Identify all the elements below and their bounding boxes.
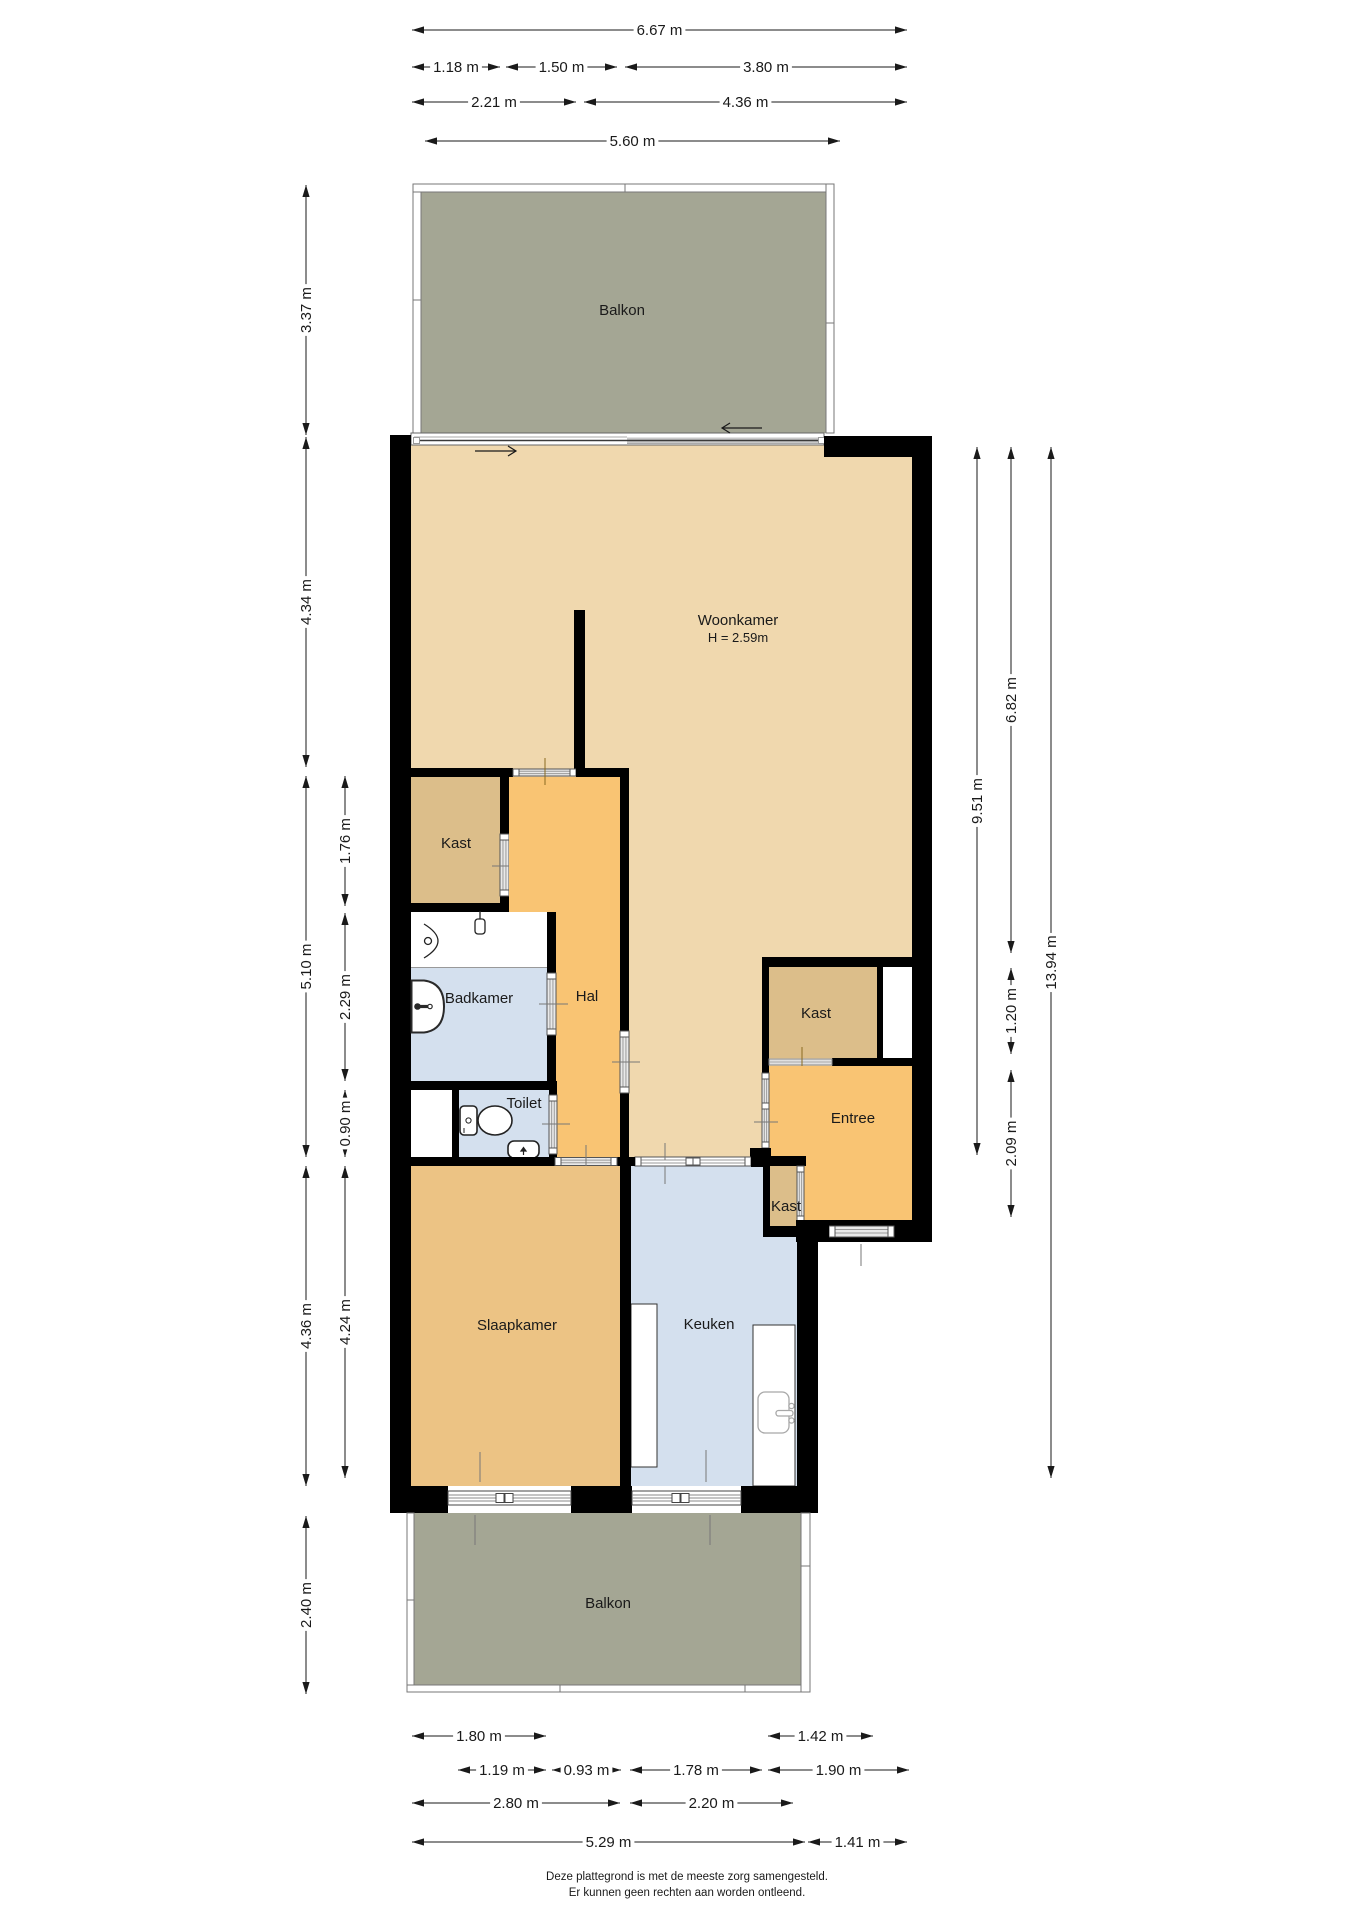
svg-text:4.34 m: 4.34 m	[298, 579, 315, 625]
svg-text:H = 2.59m: H = 2.59m	[708, 630, 768, 645]
svg-text:4.36 m: 4.36 m	[298, 1303, 315, 1349]
svg-text:1.42 m: 1.42 m	[798, 1728, 844, 1745]
svg-text:3.37 m: 3.37 m	[298, 287, 315, 333]
svg-text:2.09 m: 2.09 m	[1003, 1121, 1020, 1167]
svg-text:Woonkamer: Woonkamer	[698, 612, 779, 629]
svg-text:Slaapkamer: Slaapkamer	[477, 1317, 557, 1334]
svg-text:1.80 m: 1.80 m	[456, 1728, 502, 1745]
svg-text:3.80 m: 3.80 m	[743, 59, 789, 76]
svg-text:2.40 m: 2.40 m	[298, 1582, 315, 1628]
svg-text:1.78 m: 1.78 m	[673, 1762, 719, 1779]
svg-text:Er kunnen geen rechten aan wor: Er kunnen geen rechten aan worden ontlee…	[569, 1887, 806, 1899]
svg-text:2.21 m: 2.21 m	[471, 94, 517, 111]
svg-text:4.24 m: 4.24 m	[337, 1299, 354, 1345]
svg-text:1.76 m: 1.76 m	[337, 818, 354, 864]
svg-text:0.93 m: 0.93 m	[564, 1762, 610, 1779]
svg-text:Balkon: Balkon	[585, 1595, 631, 1612]
svg-text:Kast: Kast	[441, 835, 472, 852]
svg-text:4.36 m: 4.36 m	[723, 94, 769, 111]
svg-text:5.10 m: 5.10 m	[298, 944, 315, 990]
svg-text:Hal: Hal	[576, 988, 599, 1005]
svg-text:Entree: Entree	[831, 1110, 875, 1127]
svg-text:Badkamer: Badkamer	[445, 990, 513, 1007]
svg-text:1.18 m: 1.18 m	[433, 59, 479, 76]
svg-text:0.90 m: 0.90 m	[337, 1101, 354, 1147]
svg-text:5.60 m: 5.60 m	[610, 133, 656, 150]
svg-text:1.20 m: 1.20 m	[1003, 988, 1020, 1034]
svg-text:Keuken: Keuken	[684, 1316, 735, 1333]
svg-text:5.29 m: 5.29 m	[586, 1834, 632, 1851]
svg-text:2.29 m: 2.29 m	[337, 974, 354, 1020]
svg-text:2.20 m: 2.20 m	[689, 1795, 735, 1812]
svg-text:Kast: Kast	[801, 1005, 832, 1022]
svg-text:1.41 m: 1.41 m	[835, 1834, 881, 1851]
svg-text:1.19 m: 1.19 m	[479, 1762, 525, 1779]
svg-text:Balkon: Balkon	[599, 302, 645, 319]
svg-text:1.50 m: 1.50 m	[539, 59, 585, 76]
svg-text:13.94 m: 13.94 m	[1043, 935, 1060, 989]
svg-text:Toilet: Toilet	[506, 1095, 542, 1112]
svg-text:9.51 m: 9.51 m	[969, 778, 986, 824]
svg-text:2.80 m: 2.80 m	[493, 1795, 539, 1812]
svg-text:6.82 m: 6.82 m	[1003, 677, 1020, 723]
svg-text:Deze plattegrond is met de mee: Deze plattegrond is met de meeste zorg s…	[546, 1871, 828, 1883]
svg-text:1.90 m: 1.90 m	[816, 1762, 862, 1779]
svg-text:6.67 m: 6.67 m	[637, 22, 683, 39]
svg-text:Kast: Kast	[771, 1198, 802, 1215]
